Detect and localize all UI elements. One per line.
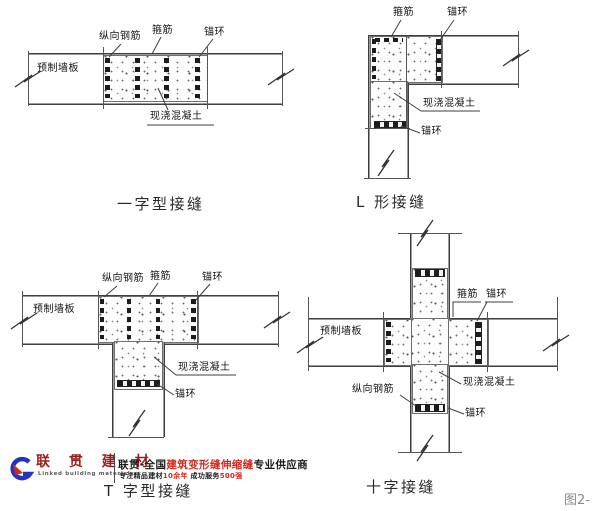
break-mark xyxy=(417,220,433,246)
leader-line xyxy=(104,286,117,297)
break-mark xyxy=(129,410,145,436)
leader-line xyxy=(448,408,464,414)
label-longitudinal-rebar: 纵向钢筋 xyxy=(352,384,394,396)
leader-line xyxy=(199,39,213,57)
leader-line xyxy=(158,88,168,110)
leader-line xyxy=(453,302,481,317)
leader-line xyxy=(391,20,401,37)
break-mark xyxy=(378,150,394,176)
label-anchor-ring-bottom: 锚环 xyxy=(465,408,486,420)
leader-line xyxy=(439,372,461,384)
label-precast-panel: 预制墙板 xyxy=(320,326,362,338)
label-stirrup: 箍筋 xyxy=(457,289,478,301)
break-mark xyxy=(297,337,323,353)
tagline-segment: 联贯-全国 xyxy=(118,459,166,471)
label-cast-concrete: 现浇混凝土 xyxy=(178,362,231,374)
leader-line xyxy=(401,126,420,133)
leader-line xyxy=(394,93,421,111)
subline-segment: 成功服务 xyxy=(188,472,220,480)
diagram-caption: L 形接缝 xyxy=(356,191,427,212)
label-longitudinal-rebar: 纵向钢筋 xyxy=(102,273,144,285)
subline-segment: 10余年 xyxy=(163,472,188,480)
label-precast-panel: 预制墙板 xyxy=(33,304,75,316)
label-stirrup: 箍筋 xyxy=(152,25,173,37)
label-anchor-ring-bottom: 锚环 xyxy=(175,389,196,401)
label-cast-concrete: 现浇混凝土 xyxy=(150,111,203,123)
leader-and-break-overlay xyxy=(0,0,600,511)
label-stirrup: 箍筋 xyxy=(393,7,414,19)
break-mark xyxy=(543,335,569,351)
drawing-sheet: 纵向钢筋 箍筋 锚环 预制墙板 现浇混凝土 一字型接缝 箍筋 锚环 现浇混凝土 … xyxy=(0,0,600,511)
break-mark xyxy=(503,50,529,66)
label-anchor-ring: 锚环 xyxy=(204,27,225,39)
leader-line xyxy=(149,283,158,296)
break-mark xyxy=(264,312,290,328)
label-stirrup: 箍筋 xyxy=(150,271,171,283)
break-mark xyxy=(417,435,433,461)
leader-line xyxy=(157,384,174,395)
label-anchor-ring-top: 锚环 xyxy=(202,272,223,284)
label-anchor-ring-top: 锚环 xyxy=(447,7,468,19)
diagram-caption: 一字型接缝 xyxy=(117,193,205,214)
lianguan-logo-icon xyxy=(9,455,34,484)
label-anchor-ring-bottom: 锚环 xyxy=(421,126,442,138)
watermark-subline: 专注精品建材10余年 成功服务500强 xyxy=(119,471,243,481)
leader-line xyxy=(440,20,454,40)
tagline-segment: 建筑变形缝伸缩缝 xyxy=(166,459,253,471)
label-anchor-ring-right: 锚环 xyxy=(486,289,507,301)
leader-line xyxy=(477,302,487,321)
label-precast-panel: 预制墙板 xyxy=(37,63,79,75)
label-cast-concrete: 现浇混凝土 xyxy=(463,377,516,389)
label-cast-concrete: 现浇混凝土 xyxy=(423,98,476,110)
diagram-caption: T 字型接缝 xyxy=(104,480,193,501)
leader-line xyxy=(109,44,121,57)
watermark-tagline: 联贯-全国建筑变形缝伸缩缝专业供应商 xyxy=(118,457,308,472)
leader-line xyxy=(400,395,416,406)
subline-segment: 500强 xyxy=(220,472,243,480)
leader-line xyxy=(154,357,176,375)
leader-line xyxy=(196,284,210,300)
leader-line xyxy=(152,37,161,54)
subline-segment: 专注精品建材 xyxy=(119,472,163,480)
label-longitudinal-rebar: 纵向钢筋 xyxy=(99,31,141,43)
break-mark xyxy=(268,69,294,85)
diagram-caption: 十字接缝 xyxy=(366,476,436,497)
figure-number: 图2- xyxy=(564,489,590,508)
watermark-divider xyxy=(114,453,115,483)
tagline-segment: 专业供应商 xyxy=(254,459,309,471)
